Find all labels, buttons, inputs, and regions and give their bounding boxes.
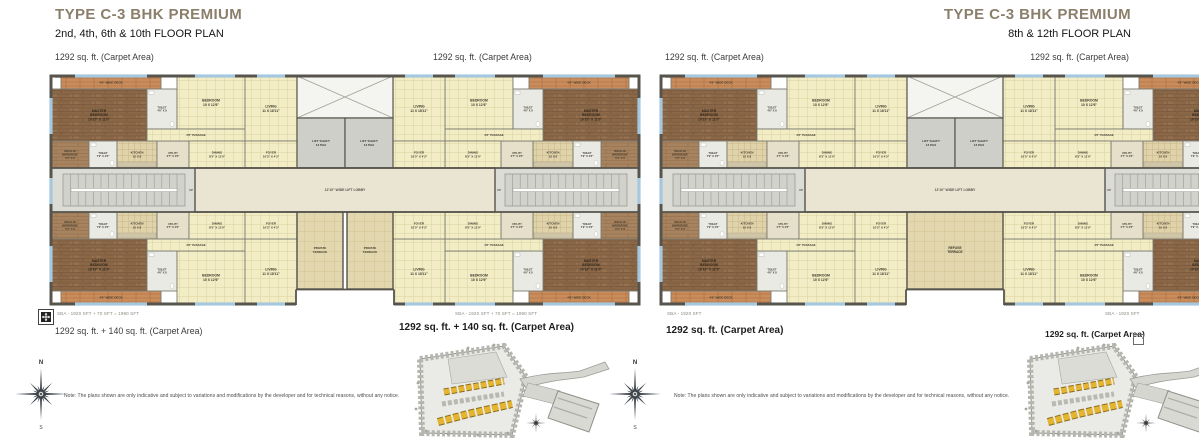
window <box>685 302 757 305</box>
carpet-area-label: 1292 sq. ft. (Carpet Area) <box>433 52 532 62</box>
disclaimer-note: Note: The plans shown are only indicativ… <box>64 393 399 399</box>
window <box>1015 74 1043 77</box>
room-label: PRIVATETERRACE <box>313 246 328 254</box>
compass-south-label: S <box>633 425 637 431</box>
room-label: 4'6" WIDE DECK <box>99 81 123 85</box>
sba-label: SBA - 1920 SFT + 70 SFT = 1990 SFT <box>57 311 139 316</box>
carpet-area-label: 1292 sq. ft. (Carpet Area) <box>665 52 764 62</box>
window <box>75 302 147 305</box>
window <box>805 302 845 305</box>
window <box>543 302 615 305</box>
page-title-right: TYPE C-3 BHK PREMIUM <box>944 6 1131 23</box>
room-label: 12'10" WIDE LIFT LOBBY <box>935 188 976 192</box>
room-label: TOILET4'6" X 8 <box>523 105 533 112</box>
room-label: 3'6" PASSAGE <box>186 243 205 247</box>
room-label: BEDROOM10 X 12'6" <box>812 99 830 107</box>
room-label: BEDROOM10 X 12'6" <box>812 274 830 282</box>
sba-label: SBA - 1920 SFT <box>1105 311 1140 316</box>
room-label: 4'6" WIDE DECK <box>709 296 733 300</box>
room-label: PRIVATETERRACE <box>363 246 378 254</box>
room-label: 12'10" WIDE LIFT LOBBY <box>325 188 366 192</box>
room-label: BEDROOM10 X 12'6" <box>202 274 220 282</box>
room-label: TOILET4'6" X 8 <box>767 105 777 112</box>
floor-plan-drawing: 4'6" WIDE DECKMASTERBEDROOM10'10" X 11'0… <box>655 72 1199 318</box>
sba-label: SBA - 1920 SFT + 70 SFT = 1990 SFT <box>455 311 537 316</box>
window <box>455 302 495 305</box>
room-label: TOILET4'6" X 8 <box>767 267 777 274</box>
window <box>405 74 433 77</box>
room-label: BEDROOM10 X 12'6" <box>470 274 488 282</box>
compass-rose: NS <box>606 356 664 432</box>
room-label: BEDROOM10 X 12'6" <box>1080 99 1098 107</box>
room-label: 4'6" WIDE DECK <box>567 81 591 85</box>
window <box>1153 74 1199 77</box>
room-label: UP <box>497 188 501 192</box>
room-label: UP <box>189 188 193 192</box>
window <box>195 74 235 77</box>
compass-north-label: N <box>633 360 637 366</box>
room-label: BEDROOM10 X 12'6" <box>470 99 488 107</box>
sba-label: SBA - 1920 SFT <box>667 311 702 316</box>
window <box>659 246 662 282</box>
building: 4'6" WIDE DECKMASTERBEDROOM10'10" X 11'0… <box>659 74 1199 305</box>
room-label: 3'6" PASSAGE <box>484 243 503 247</box>
room-label: 4'6" WIDE DECK <box>1177 296 1199 300</box>
window <box>685 74 757 77</box>
move-arrows-icon <box>41 312 51 322</box>
room-label: 4'6" WIDE DECK <box>567 296 591 300</box>
room-label: TOILET4'6" X 8 <box>157 267 167 274</box>
room-label: 3'6" PASSAGE <box>484 133 503 137</box>
carpet-area-label: 1292 sq. ft. + 140 sq. ft. (Carpet Area) <box>399 322 574 333</box>
site-key-map <box>1018 343 1199 439</box>
room-label: BEDROOM10 X 12'6" <box>1080 274 1098 282</box>
site-key-map <box>408 343 620 439</box>
floor-plan-page: TYPE C-3 BHK PREMIUM 2nd, 4th, 6th & 10t… <box>0 0 1199 439</box>
floor-plan-right: SBA - 1920 SFT SBA - 1920 SFT 4'6" WIDE … <box>655 72 1199 318</box>
compass-north-label: N <box>39 360 43 366</box>
window <box>195 302 235 305</box>
room-label: TOILET4'6" X 8 <box>157 105 167 112</box>
plan-subtitle-left: 2nd, 4th, 6th & 10th FLOOR PLAN <box>55 28 224 40</box>
room-label: REFUGETERRACE <box>947 246 962 254</box>
window <box>867 74 895 77</box>
carpet-area-label: 1292 sq. ft. (Carpet Area) <box>666 325 783 336</box>
carpet-area-label: 1292 sq. ft. (Carpet Area) <box>1030 52 1129 62</box>
room-label: TOILET4'6" X 8 <box>1133 105 1143 112</box>
room-label: TOILET4'6" X 8 <box>1133 267 1143 274</box>
floor-plan-drawing: 4'6" WIDE DECKMASTERBEDROOM10'10" X 11'0… <box>45 72 645 318</box>
room-label: UP <box>1107 188 1111 192</box>
window <box>637 246 640 282</box>
room-label: 3'6" PASSAGE <box>796 133 815 137</box>
compass-rose: NS <box>12 356 70 432</box>
room-label: UP <box>799 188 803 192</box>
room-label: BEDROOM10 X 12'6" <box>202 99 220 107</box>
room-label: 3'6" PASSAGE <box>186 133 205 137</box>
building: 4'6" WIDE DECKMASTERBEDROOM10'10" X 11'0… <box>49 74 640 305</box>
site-map-graphic <box>1025 344 1199 437</box>
window <box>49 98 52 134</box>
window <box>805 74 845 77</box>
compass-south-label: S <box>39 425 43 431</box>
room-label: TOILET7'9" X 4'6" <box>1191 151 1199 158</box>
window <box>637 98 640 134</box>
window <box>405 302 433 305</box>
room-label: TOILET4'6" X 8 <box>523 267 533 274</box>
room-label: 4'6" WIDE DECK <box>709 81 733 85</box>
page-title-left: TYPE C-3 BHK PREMIUM <box>55 6 242 23</box>
window <box>867 302 895 305</box>
window <box>543 74 615 77</box>
room-label: 3'6" PASSAGE <box>1094 243 1113 247</box>
window <box>1153 302 1199 305</box>
carpet-area-label: 1292 sq. ft. (Carpet Area) <box>1045 329 1145 339</box>
carpet-area-label: 1292 sq. ft. + 140 sq. ft. (Carpet Area) <box>55 326 202 336</box>
window <box>1065 74 1105 77</box>
window <box>1065 302 1105 305</box>
room-label: 3'6" PASSAGE <box>1094 133 1113 137</box>
floor-plan-left: SBA - 1920 SFT SBA - 1920 SFT 4'6" WIDE … <box>45 72 645 318</box>
window <box>1015 302 1043 305</box>
carpet-area-label: 1292 sq. ft. (Carpet Area) <box>55 52 154 62</box>
site-map-graphic <box>415 344 609 437</box>
window <box>659 98 662 134</box>
window <box>455 74 495 77</box>
window <box>49 246 52 282</box>
window <box>75 74 147 77</box>
window <box>257 74 285 77</box>
room-label: 4'6" WIDE DECK <box>1177 81 1199 85</box>
pan-handle-icon[interactable] <box>38 309 54 325</box>
room-label: 3'6" PASSAGE <box>796 243 815 247</box>
disclaimer-note: Note: The plans shown are only indicativ… <box>674 393 1009 399</box>
room-label: TOILET7'9" X 4'6" <box>1191 222 1199 229</box>
plan-subtitle-right: 8th & 12th FLOOR PLAN <box>1008 28 1131 40</box>
window <box>257 302 285 305</box>
room-label: 4'6" WIDE DECK <box>99 296 123 300</box>
